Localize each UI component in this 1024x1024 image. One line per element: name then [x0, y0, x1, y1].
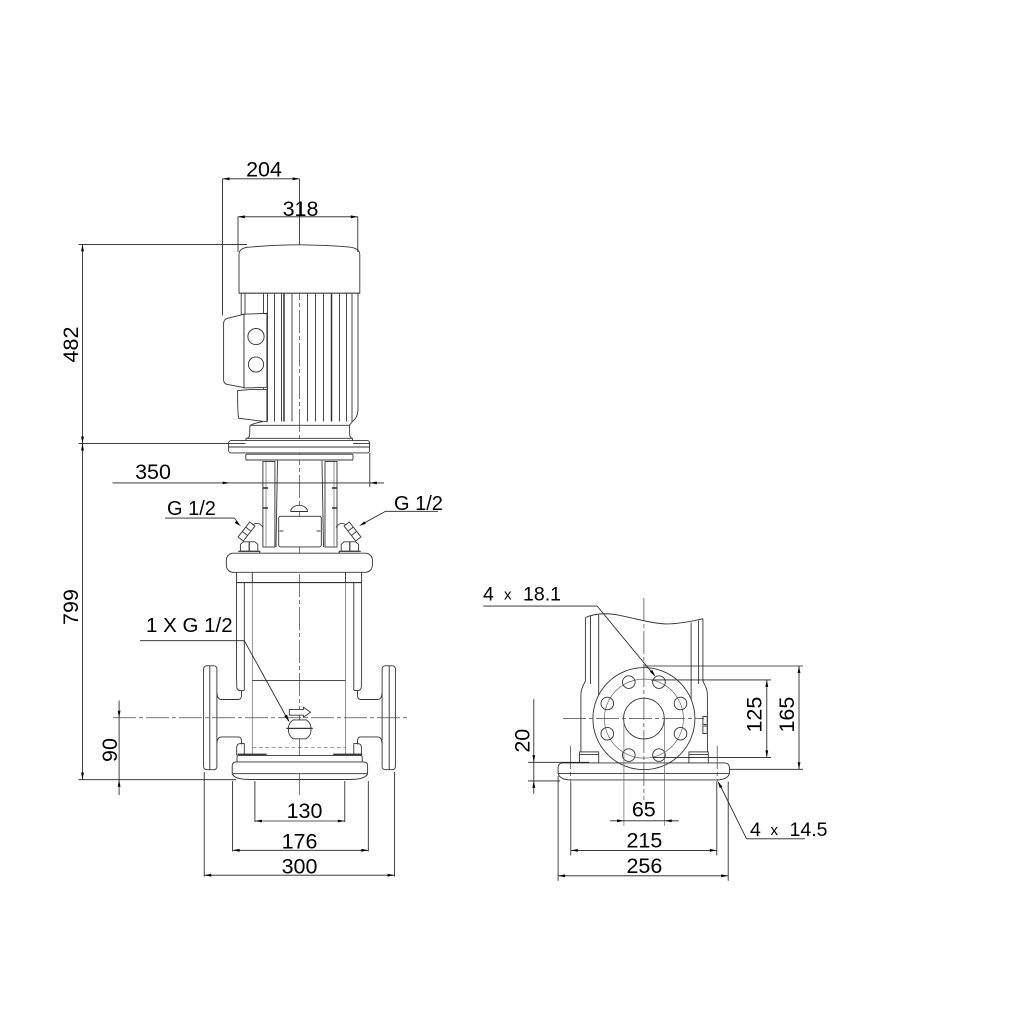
svg-text:20: 20 — [511, 729, 535, 753]
svg-text:65: 65 — [632, 798, 656, 822]
svg-text:125: 125 — [743, 697, 767, 733]
svg-text:165: 165 — [775, 697, 799, 733]
svg-text:x: x — [771, 822, 779, 839]
svg-text:x: x — [504, 587, 512, 604]
svg-text:799: 799 — [59, 589, 83, 625]
svg-text:215: 215 — [626, 829, 662, 853]
svg-text:4: 4 — [483, 584, 494, 606]
svg-text:14.5: 14.5 — [790, 819, 828, 841]
svg-text:350: 350 — [135, 460, 171, 484]
svg-text:18.1: 18.1 — [523, 584, 561, 606]
svg-text:90: 90 — [98, 738, 122, 762]
svg-text:130: 130 — [287, 799, 323, 823]
svg-text:4: 4 — [750, 819, 761, 841]
svg-text:204: 204 — [246, 158, 282, 182]
svg-text:1 X G 1/2: 1 X G 1/2 — [146, 614, 233, 637]
svg-text:300: 300 — [282, 855, 318, 879]
svg-text:176: 176 — [282, 830, 318, 854]
svg-text:256: 256 — [626, 854, 662, 878]
svg-text:318: 318 — [283, 197, 319, 221]
svg-text:G 1/2: G 1/2 — [167, 498, 216, 520]
svg-text:482: 482 — [59, 327, 83, 363]
